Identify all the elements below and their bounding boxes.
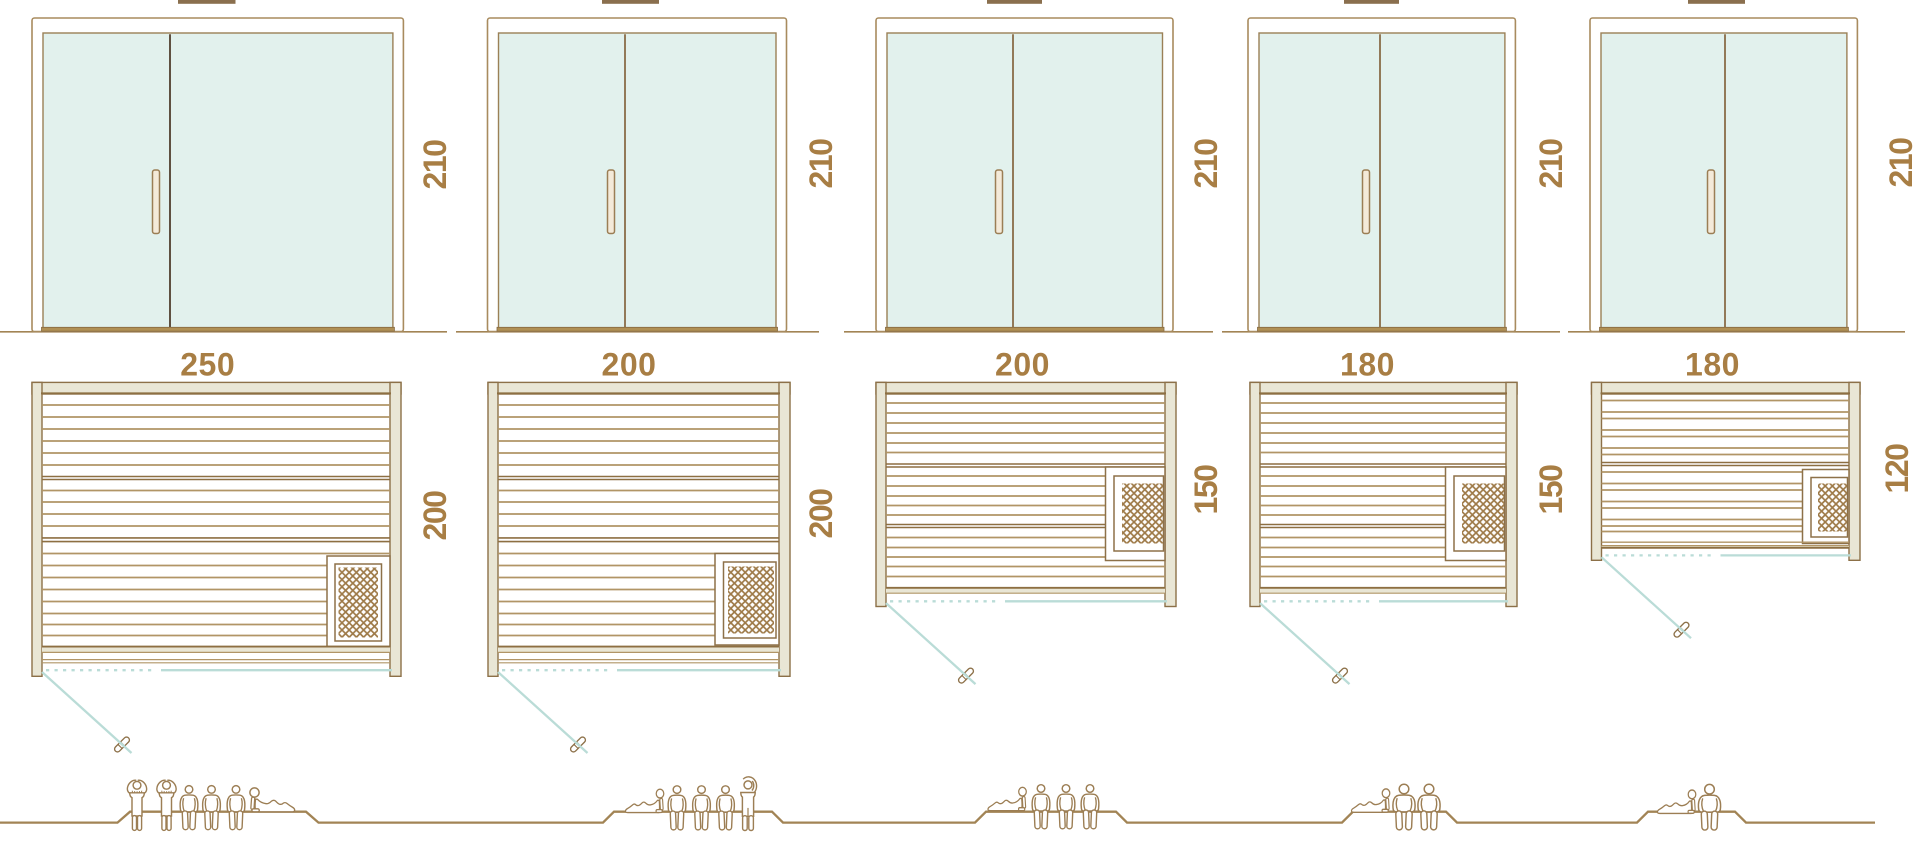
svg-text:210: 210 xyxy=(417,140,453,190)
svg-text:150: 150 xyxy=(1533,465,1569,515)
svg-text:120: 120 xyxy=(1879,444,1915,494)
svg-text:200: 200 xyxy=(995,347,1050,383)
svg-text:210: 210 xyxy=(1188,139,1224,189)
svg-text:210: 210 xyxy=(803,139,839,189)
svg-text:210: 210 xyxy=(1883,138,1919,188)
svg-text:180: 180 xyxy=(1340,347,1395,383)
svg-text:200: 200 xyxy=(417,491,453,541)
svg-text:200: 200 xyxy=(803,489,839,539)
svg-text:180: 180 xyxy=(1685,347,1740,383)
svg-text:200: 200 xyxy=(602,347,657,383)
svg-text:210: 210 xyxy=(1533,139,1569,189)
svg-text:150: 150 xyxy=(1188,465,1224,515)
svg-text:250: 250 xyxy=(180,347,235,383)
